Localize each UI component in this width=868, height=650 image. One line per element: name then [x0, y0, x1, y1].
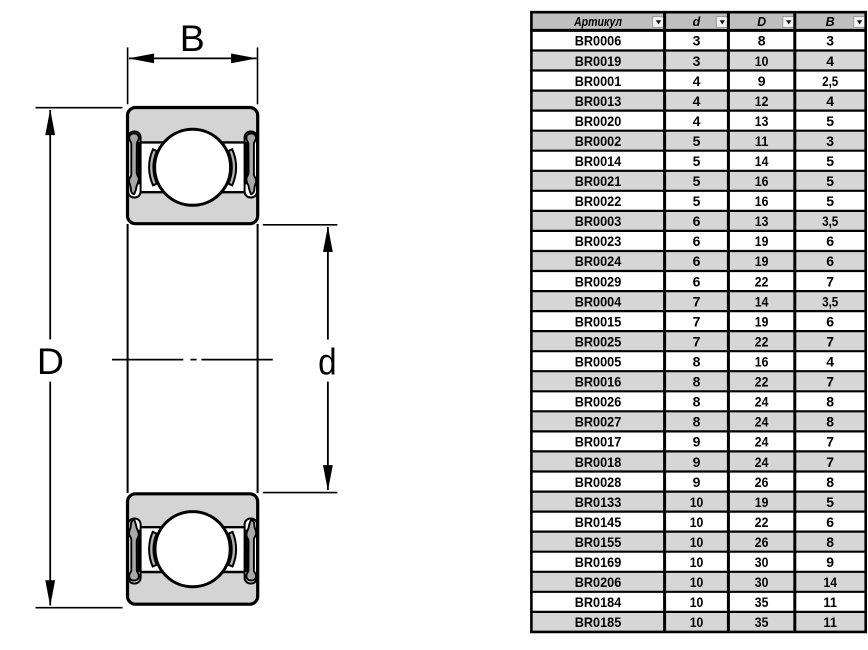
svg-text:4: 4 — [693, 73, 701, 89]
svg-text:BR0029: BR0029 — [575, 273, 622, 289]
svg-text:6: 6 — [693, 213, 701, 229]
svg-text:5: 5 — [826, 494, 834, 510]
svg-text:7: 7 — [826, 273, 834, 289]
svg-text:35: 35 — [755, 594, 769, 610]
svg-text:BR0027: BR0027 — [575, 414, 622, 430]
svg-text:B: B — [826, 15, 835, 29]
svg-text:14: 14 — [755, 293, 769, 309]
svg-text:6: 6 — [693, 253, 701, 269]
svg-text:7: 7 — [693, 313, 701, 329]
svg-text:9: 9 — [693, 434, 701, 450]
svg-text:5: 5 — [826, 113, 834, 129]
svg-text:BR0022: BR0022 — [575, 193, 622, 209]
svg-text:22: 22 — [755, 333, 769, 349]
svg-text:BR0024: BR0024 — [575, 253, 622, 269]
svg-text:8: 8 — [693, 394, 701, 410]
svg-text:BR0013: BR0013 — [575, 93, 622, 109]
svg-text:10: 10 — [690, 514, 704, 530]
svg-text:10: 10 — [690, 614, 704, 630]
svg-text:10: 10 — [690, 494, 704, 510]
svg-text:BR0016: BR0016 — [575, 374, 622, 390]
svg-text:2,5: 2,5 — [822, 73, 838, 89]
svg-text:8: 8 — [826, 474, 834, 490]
svg-text:6: 6 — [826, 514, 834, 530]
svg-text:9: 9 — [693, 454, 701, 470]
svg-text:BR0006: BR0006 — [575, 33, 622, 49]
svg-text:BR0002: BR0002 — [575, 133, 622, 149]
svg-text:BR0003: BR0003 — [575, 213, 622, 229]
svg-text:10: 10 — [690, 574, 704, 590]
svg-text:BR0025: BR0025 — [575, 333, 622, 349]
svg-text:BR0018: BR0018 — [575, 454, 622, 470]
svg-text:5: 5 — [693, 133, 701, 149]
svg-text:7: 7 — [826, 454, 834, 470]
svg-text:6: 6 — [693, 273, 701, 289]
svg-text:13: 13 — [755, 113, 769, 129]
svg-text:10: 10 — [690, 594, 704, 610]
svg-text:19: 19 — [755, 494, 769, 510]
svg-text:9: 9 — [693, 474, 701, 490]
svg-text:B: B — [180, 17, 205, 59]
svg-text:7: 7 — [693, 333, 701, 349]
svg-text:BR0021: BR0021 — [575, 173, 622, 189]
svg-text:10: 10 — [755, 53, 769, 69]
svg-text:30: 30 — [755, 574, 769, 590]
svg-text:BR0155: BR0155 — [575, 534, 622, 550]
svg-text:12: 12 — [755, 93, 769, 109]
svg-text:8: 8 — [693, 414, 701, 430]
svg-text:22: 22 — [755, 374, 769, 390]
svg-text:d: d — [693, 15, 701, 29]
svg-text:BR0019: BR0019 — [575, 53, 622, 69]
svg-text:26: 26 — [755, 534, 769, 550]
svg-text:5: 5 — [693, 153, 701, 169]
svg-text:D: D — [757, 15, 766, 29]
svg-text:BR0185: BR0185 — [575, 614, 622, 630]
svg-text:BR0004: BR0004 — [575, 293, 622, 309]
svg-text:6: 6 — [826, 313, 834, 329]
svg-text:BR0020: BR0020 — [575, 113, 622, 129]
svg-text:BR0028: BR0028 — [575, 474, 622, 490]
svg-text:6: 6 — [826, 253, 834, 269]
svg-text:5: 5 — [826, 193, 834, 209]
svg-text:19: 19 — [755, 253, 769, 269]
svg-text:BR0145: BR0145 — [575, 514, 622, 530]
svg-text:BR0169: BR0169 — [575, 554, 622, 570]
svg-text:16: 16 — [755, 193, 769, 209]
svg-text:14: 14 — [823, 574, 837, 590]
svg-text:D: D — [37, 340, 64, 382]
svg-text:8: 8 — [826, 414, 834, 430]
svg-text:BR0014: BR0014 — [575, 153, 622, 169]
svg-text:22: 22 — [755, 273, 769, 289]
svg-text:BR0206: BR0206 — [575, 574, 622, 590]
svg-text:BR0005: BR0005 — [575, 354, 622, 370]
svg-text:4: 4 — [826, 93, 834, 109]
svg-text:6: 6 — [826, 233, 834, 249]
svg-text:BR0133: BR0133 — [575, 494, 622, 510]
svg-text:24: 24 — [755, 394, 769, 410]
svg-text:4: 4 — [693, 113, 701, 129]
svg-text:4: 4 — [693, 93, 701, 109]
svg-text:3: 3 — [826, 33, 834, 49]
svg-text:7: 7 — [826, 374, 834, 390]
svg-text:3,5: 3,5 — [822, 293, 838, 309]
svg-text:13: 13 — [755, 213, 769, 229]
svg-text:BR0017: BR0017 — [575, 434, 622, 450]
svg-text:5: 5 — [826, 153, 834, 169]
svg-text:6: 6 — [693, 233, 701, 249]
svg-text:8: 8 — [826, 534, 834, 550]
svg-text:5: 5 — [826, 173, 834, 189]
svg-text:11: 11 — [823, 594, 837, 610]
svg-text:5: 5 — [693, 173, 701, 189]
svg-text:BR0023: BR0023 — [575, 233, 622, 249]
svg-text:BR0001: BR0001 — [575, 73, 622, 89]
svg-text:22: 22 — [755, 514, 769, 530]
svg-text:8: 8 — [693, 354, 701, 370]
svg-text:d: d — [318, 341, 337, 383]
svg-text:10: 10 — [690, 534, 704, 550]
svg-text:24: 24 — [755, 434, 769, 450]
svg-text:BR0184: BR0184 — [575, 594, 622, 610]
svg-text:8: 8 — [826, 394, 834, 410]
svg-text:16: 16 — [755, 354, 769, 370]
svg-text:9: 9 — [758, 73, 766, 89]
svg-text:5: 5 — [693, 193, 701, 209]
svg-text:24: 24 — [755, 414, 769, 430]
svg-text:19: 19 — [755, 233, 769, 249]
svg-text:11: 11 — [755, 133, 769, 149]
svg-text:14: 14 — [755, 153, 769, 169]
svg-text:7: 7 — [826, 434, 834, 450]
svg-text:11: 11 — [823, 614, 837, 630]
svg-text:30: 30 — [755, 554, 769, 570]
svg-text:9: 9 — [826, 554, 834, 570]
svg-text:16: 16 — [755, 173, 769, 189]
svg-text:BR0015: BR0015 — [575, 313, 622, 329]
svg-text:4: 4 — [826, 53, 834, 69]
svg-text:BR0026: BR0026 — [575, 394, 622, 410]
svg-text:3,5: 3,5 — [822, 213, 838, 229]
svg-text:7: 7 — [826, 333, 834, 349]
svg-text:3: 3 — [693, 33, 701, 49]
svg-text:19: 19 — [755, 313, 769, 329]
svg-text:24: 24 — [755, 454, 769, 470]
svg-text:10: 10 — [690, 554, 704, 570]
svg-text:7: 7 — [693, 293, 701, 309]
svg-text:8: 8 — [758, 33, 766, 49]
svg-text:Артикул: Артикул — [573, 15, 622, 29]
svg-text:26: 26 — [755, 474, 769, 490]
svg-text:3: 3 — [826, 133, 834, 149]
svg-text:4: 4 — [826, 354, 834, 370]
svg-text:3: 3 — [693, 53, 701, 69]
svg-text:8: 8 — [693, 374, 701, 390]
svg-text:35: 35 — [755, 614, 769, 630]
